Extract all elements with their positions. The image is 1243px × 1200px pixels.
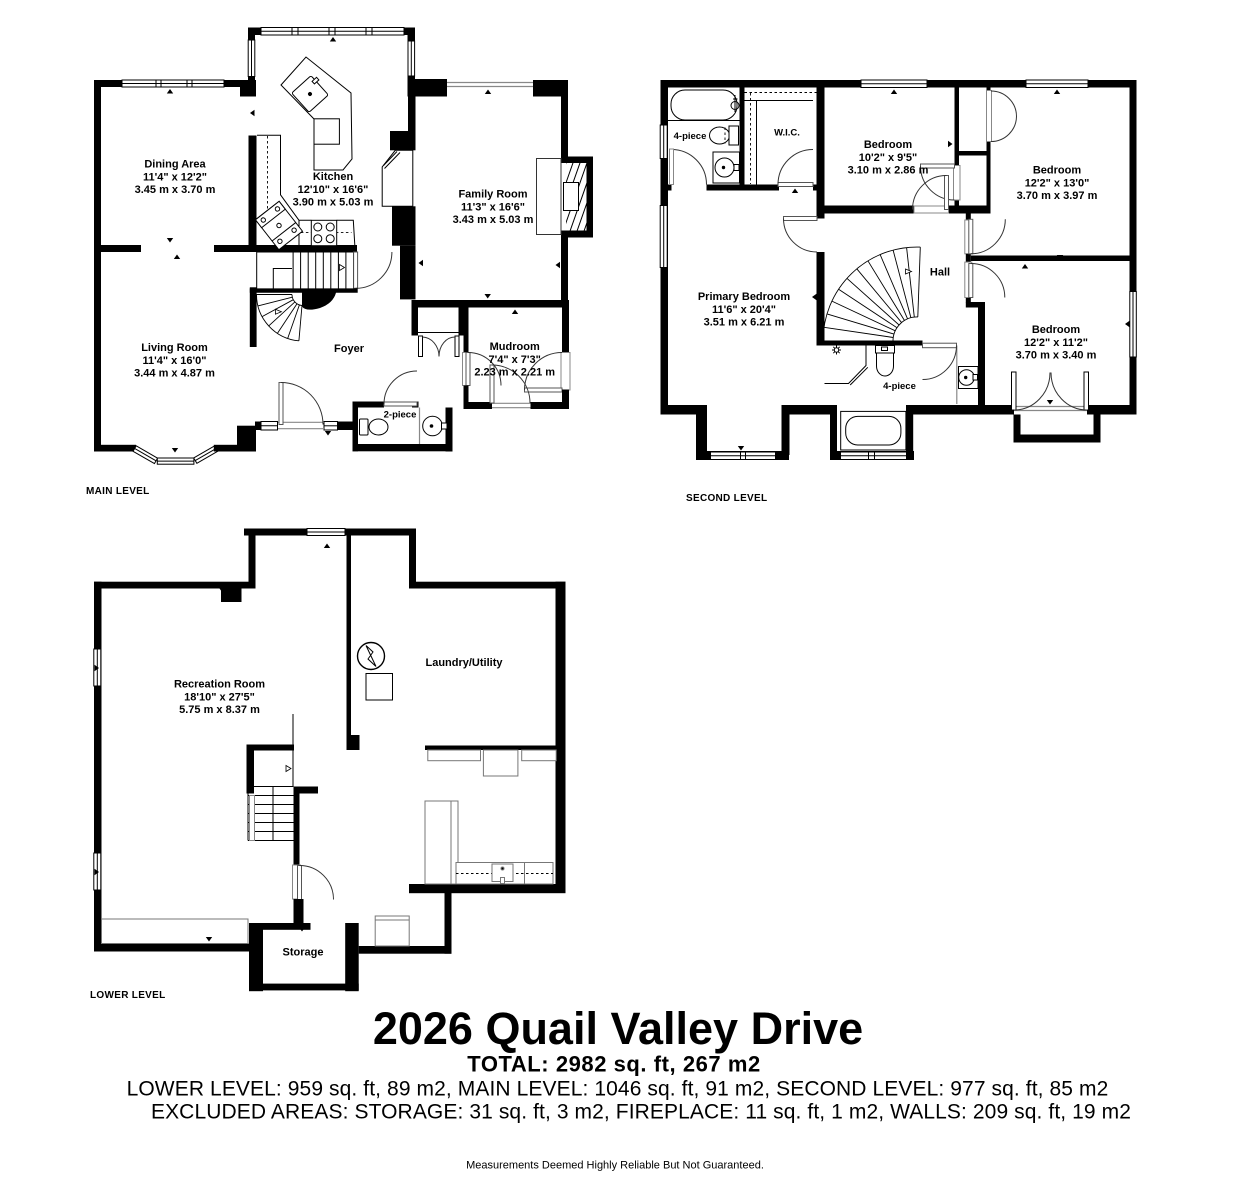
svg-text:Foyer: Foyer xyxy=(334,343,365,355)
svg-text:LOWER LEVEL: LOWER LEVEL xyxy=(90,990,166,1001)
svg-text:W.I.C.: W.I.C. xyxy=(774,128,800,139)
svg-text:3.90 m x 5.03 m: 3.90 m x 5.03 m xyxy=(293,197,374,209)
svg-text:18'10" x 27'5": 18'10" x 27'5" xyxy=(184,691,255,703)
svg-text:12'2" x 11'2": 12'2" x 11'2" xyxy=(1024,337,1088,349)
svg-text:11'4" x 16'0": 11'4" x 16'0" xyxy=(143,355,207,367)
svg-text:Hall: Hall xyxy=(930,267,950,279)
svg-text:Mudroom: Mudroom xyxy=(490,341,540,353)
svg-text:2026 Quail Valley Drive: 2026 Quail Valley Drive xyxy=(373,1003,863,1054)
svg-text:Kitchen: Kitchen xyxy=(313,171,354,183)
svg-text:3.45 m x 3.70 m: 3.45 m x 3.70 m xyxy=(135,184,216,196)
svg-text:Storage: Storage xyxy=(283,947,324,959)
svg-text:11'3" x 16'6": 11'3" x 16'6" xyxy=(461,201,525,213)
svg-text:3.70 m x 3.40 m: 3.70 m x 3.40 m xyxy=(1016,350,1097,362)
svg-text:Dining Area: Dining Area xyxy=(144,159,206,171)
svg-text:Family Room: Family Room xyxy=(458,189,527,201)
svg-text:12'2" x 13'0": 12'2" x 13'0" xyxy=(1025,177,1090,189)
svg-text:Bedroom: Bedroom xyxy=(1033,165,1082,177)
svg-text:Primary Bedroom: Primary Bedroom xyxy=(698,291,791,303)
svg-text:Living Room: Living Room xyxy=(141,342,208,354)
svg-text:2-piece: 2-piece xyxy=(384,410,417,421)
svg-text:MAIN LEVEL: MAIN LEVEL xyxy=(86,486,150,497)
svg-text:11'4" x 12'2": 11'4" x 12'2" xyxy=(143,171,207,183)
svg-text:4-piece: 4-piece xyxy=(674,131,707,142)
svg-text:TOTAL: 2982 sq. ft, 267 m2: TOTAL: 2982 sq. ft, 267 m2 xyxy=(467,1052,760,1077)
svg-text:12'10" x 16'6": 12'10" x 16'6" xyxy=(298,184,369,196)
svg-text:3.10 m x 2.86 m: 3.10 m x 2.86 m xyxy=(848,165,929,177)
svg-text:LOWER LEVEL: 959 sq. ft, 89 m2: LOWER LEVEL: 959 sq. ft, 89 m2, MAIN LEV… xyxy=(127,1078,1109,1101)
svg-text:EXCLUDED AREAS: STORAGE: 31 sq: EXCLUDED AREAS: STORAGE: 31 sq. ft, 3 m2… xyxy=(151,1101,1131,1124)
svg-text:3.43 m x 5.03 m: 3.43 m x 5.03 m xyxy=(453,214,534,226)
svg-text:Bedroom: Bedroom xyxy=(1032,324,1081,336)
svg-text:SECOND LEVEL: SECOND LEVEL xyxy=(686,493,767,504)
svg-text:2.23 m x 2.21 m: 2.23 m x 2.21 m xyxy=(474,367,555,379)
svg-text:3.51 m x 6.21 m: 3.51 m x 6.21 m xyxy=(704,317,785,329)
svg-text:Laundry/Utility: Laundry/Utility xyxy=(425,657,503,669)
svg-text:Bedroom: Bedroom xyxy=(864,139,913,151)
svg-text:7'4" x 7'3": 7'4" x 7'3" xyxy=(489,354,541,366)
svg-text:10'2" x 9'5": 10'2" x 9'5" xyxy=(859,152,917,164)
svg-text:5.75 m x 8.37 m: 5.75 m x 8.37 m xyxy=(179,704,260,716)
svg-text:4-piece: 4-piece xyxy=(883,381,916,392)
svg-text:3.44 m x 4.87 m: 3.44 m x 4.87 m xyxy=(134,368,215,380)
svg-text:Recreation Room: Recreation Room xyxy=(174,679,265,691)
svg-text:3.70 m x 3.97 m: 3.70 m x 3.97 m xyxy=(1017,190,1098,202)
svg-text:11'6" x 20'4": 11'6" x 20'4" xyxy=(712,304,776,316)
svg-text:Measurements Deemed Highly Rel: Measurements Deemed Highly Reliable But … xyxy=(466,1160,764,1172)
